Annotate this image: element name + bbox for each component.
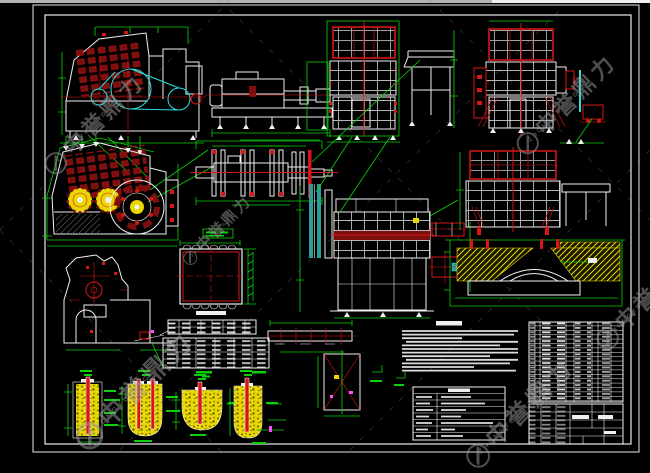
- view-elevation-front: [312, 21, 454, 162]
- table-small-upper: [168, 320, 256, 334]
- notes-block: [402, 321, 518, 371]
- view-rotor-section: [42, 136, 214, 246]
- view-elevation-side: [450, 21, 606, 144]
- view-elevation-rear: [456, 147, 610, 235]
- view-foundation-section: [444, 239, 625, 306]
- view-grate-plate: [176, 229, 256, 315]
- cad-sheet: 中誉鼎力 ZHONGYUDINGLI 中誉鼎力 ZHONGYUDINGLI 中誉…: [0, 0, 650, 455]
- view-motor-assembly: [205, 62, 344, 146]
- spec-table: [413, 387, 505, 440]
- title-block: [529, 404, 623, 444]
- view-side-profile: [64, 255, 172, 367]
- cad-drawing-canvas: [0, 0, 650, 455]
- screen-top-strip: [0, 0, 650, 3]
- view-anchor-bolt-details: [64, 370, 286, 444]
- view-rotor-shaft: [190, 141, 338, 205]
- bom-table: [529, 322, 623, 402]
- view-liner-assembly: [266, 320, 405, 416]
- view-crusher-with-feeder: [296, 137, 472, 318]
- table-small-lower: [163, 338, 269, 378]
